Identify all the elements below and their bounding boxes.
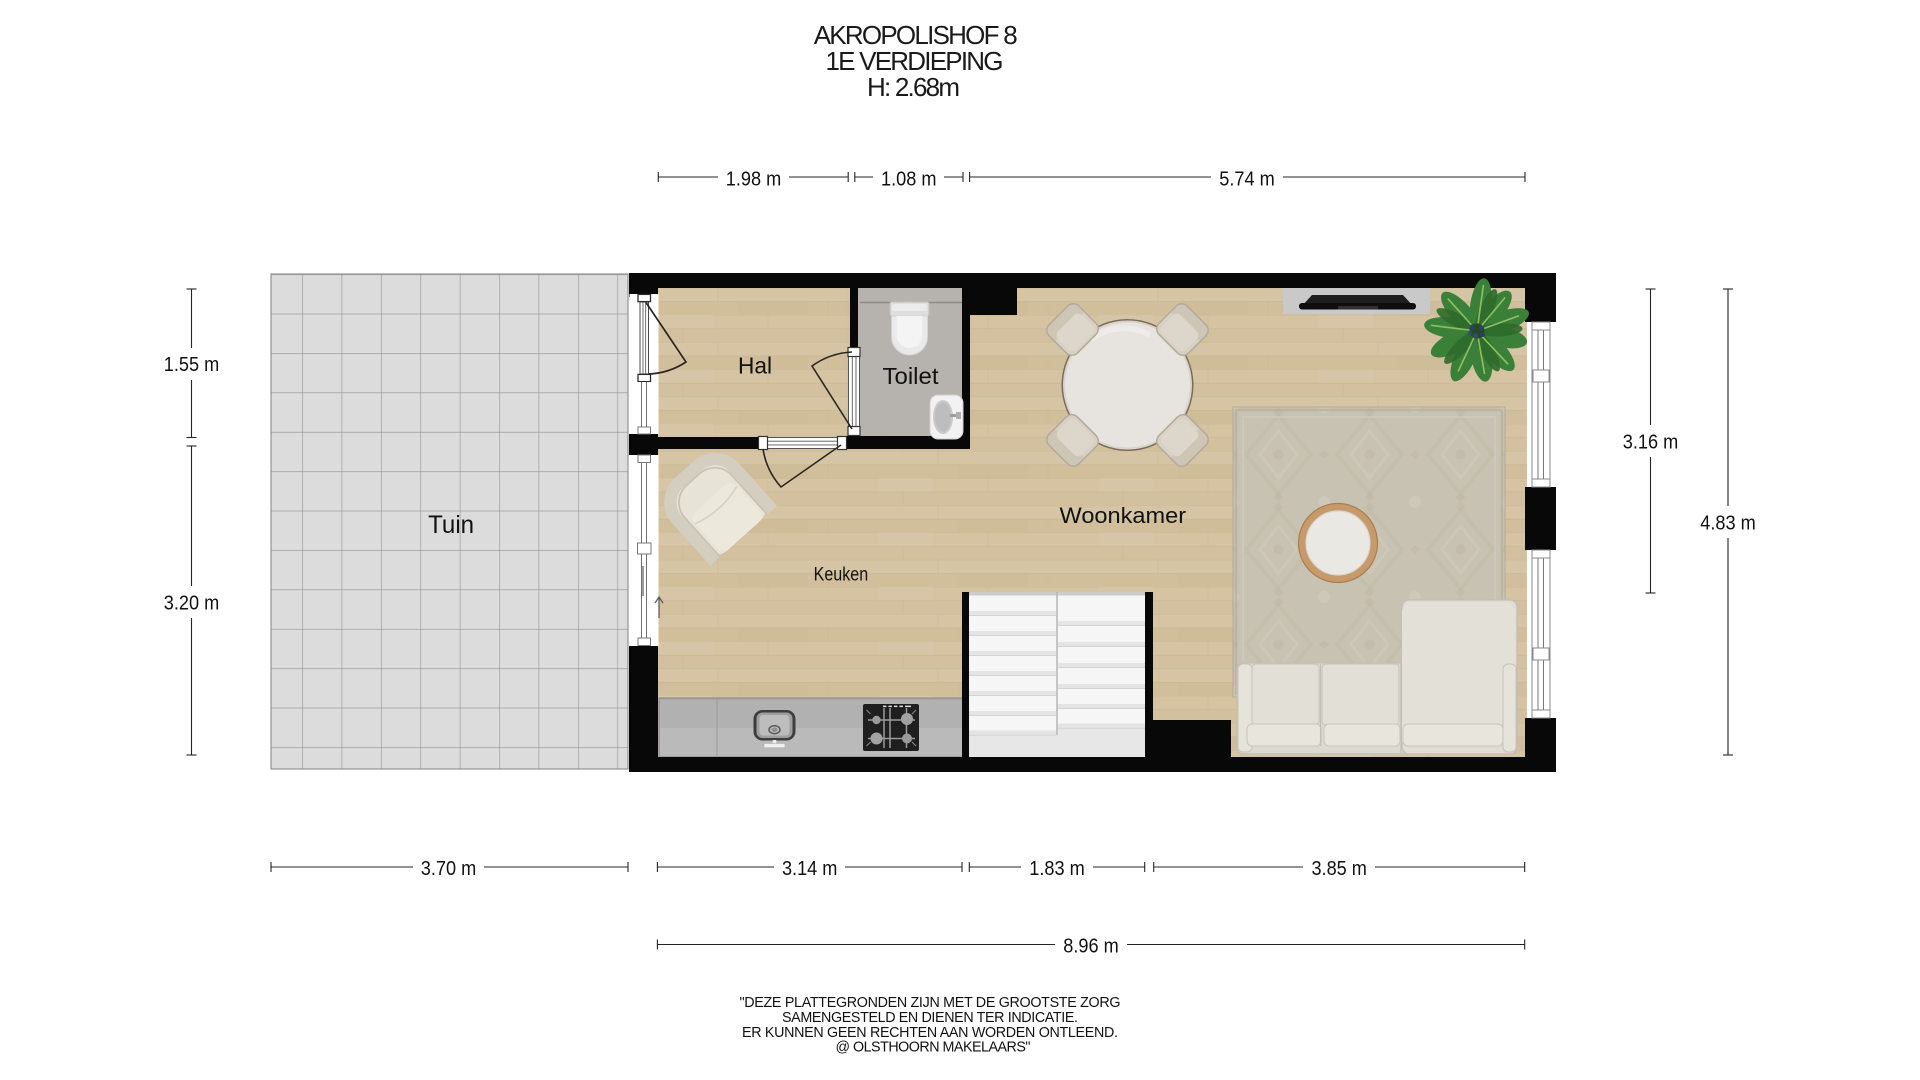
svg-text:3.20 m: 3.20 m (164, 593, 220, 615)
svg-text:3.70 m: 3.70 m (421, 858, 477, 880)
svg-text:"DEZE PLATTEGRONDEN ZIJN MET D: "DEZE PLATTEGRONDEN ZIJN MET DE GROOTSTE… (740, 995, 1121, 1011)
svg-text:3.14 m: 3.14 m (782, 858, 838, 880)
svg-text:3.16 m: 3.16 m (1623, 432, 1679, 454)
svg-text:Tuin: Tuin (428, 511, 474, 539)
svg-text:SAMENGESTELD EN DIENEN TER IND: SAMENGESTELD EN DIENEN TER INDICATIE. (782, 1010, 1078, 1026)
svg-text:H: 2.68m: H: 2.68m (867, 72, 960, 102)
svg-text:3.85 m: 3.85 m (1311, 858, 1367, 880)
svg-text:Woonkamer: Woonkamer (1060, 503, 1187, 528)
svg-text:1.08 m: 1.08 m (881, 169, 937, 191)
svg-text:Toilet: Toilet (883, 363, 940, 389)
svg-text:@ OLSTHOORN MAKELAARS": @ OLSTHOORN MAKELAARS" (836, 1040, 1031, 1056)
svg-text:1.83 m: 1.83 m (1029, 858, 1085, 880)
svg-text:8.96 m: 8.96 m (1063, 936, 1119, 958)
svg-text:1.98 m: 1.98 m (726, 169, 782, 191)
svg-text:1.55 m: 1.55 m (164, 354, 220, 376)
svg-text:ER KUNNEN GEEN RECHTEN AAN WOR: ER KUNNEN GEEN RECHTEN AAN WORDEN ONTLEE… (742, 1025, 1118, 1041)
svg-text:5.74 m: 5.74 m (1219, 169, 1275, 191)
svg-text:Keuken: Keuken (814, 565, 869, 586)
svg-text:4.83 m: 4.83 m (1700, 513, 1756, 535)
svg-text:Hal: Hal (738, 352, 772, 378)
